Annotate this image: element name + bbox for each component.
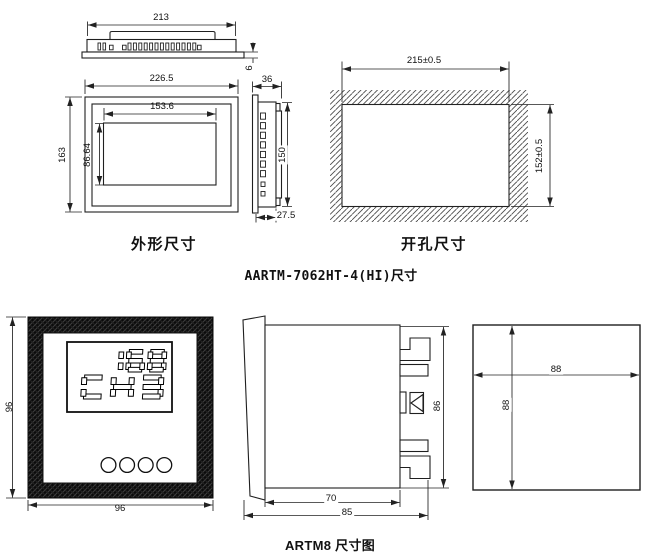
dim-label-meter-width: 96 (115, 504, 126, 514)
cutout-dimensions-label: 开孔尺寸 (401, 237, 467, 254)
dim-label-display-height: 86.64 (83, 143, 93, 167)
bottom-section-caption: ARTM8 尺寸图 (285, 539, 375, 553)
dimension-sheet: 213 6 226.5 163 153.6 86.64 36 150 27.5 … (0, 0, 647, 560)
dim-label-cutout-height: 152±0.5 (535, 138, 545, 172)
cutout-drawing (330, 90, 528, 222)
meter-rear-drawing (473, 325, 640, 490)
dim-label-display-width: 153.6 (150, 102, 174, 112)
dim-label-front-height: 163 (58, 147, 68, 163)
top-view-drawing (82, 32, 244, 59)
dim-label-rear-depth: 27.5 (275, 211, 297, 221)
dim-label-front-width: 226.5 (150, 74, 174, 84)
dim-label-meter-height: 96 (5, 402, 15, 413)
meter-front-drawing (28, 317, 213, 498)
dim-label-meter-body-depth: 70 (324, 493, 338, 503)
top-section-caption: AARTM-7062HT-4(HI)尺寸 (245, 270, 418, 284)
dim-label-bezel-thickness: 6 (245, 65, 255, 70)
dim-label-side-height: 150 (277, 145, 287, 164)
dim-label-meter-rear-height: 88 (502, 398, 512, 412)
meter-side-drawing (243, 316, 430, 500)
dim-label-top-width: 213 (153, 13, 169, 23)
dim-label-side-depth: 36 (262, 75, 273, 85)
dim-label-meter-rear-width: 88 (549, 365, 563, 375)
dim-label-meter-side-height: 86 (433, 399, 443, 413)
dim-label-cutout-width: 215±0.5 (407, 56, 441, 66)
dim-label-meter-total-depth: 85 (340, 507, 354, 517)
outline-dimensions-label: 外形尺寸 (131, 237, 197, 254)
